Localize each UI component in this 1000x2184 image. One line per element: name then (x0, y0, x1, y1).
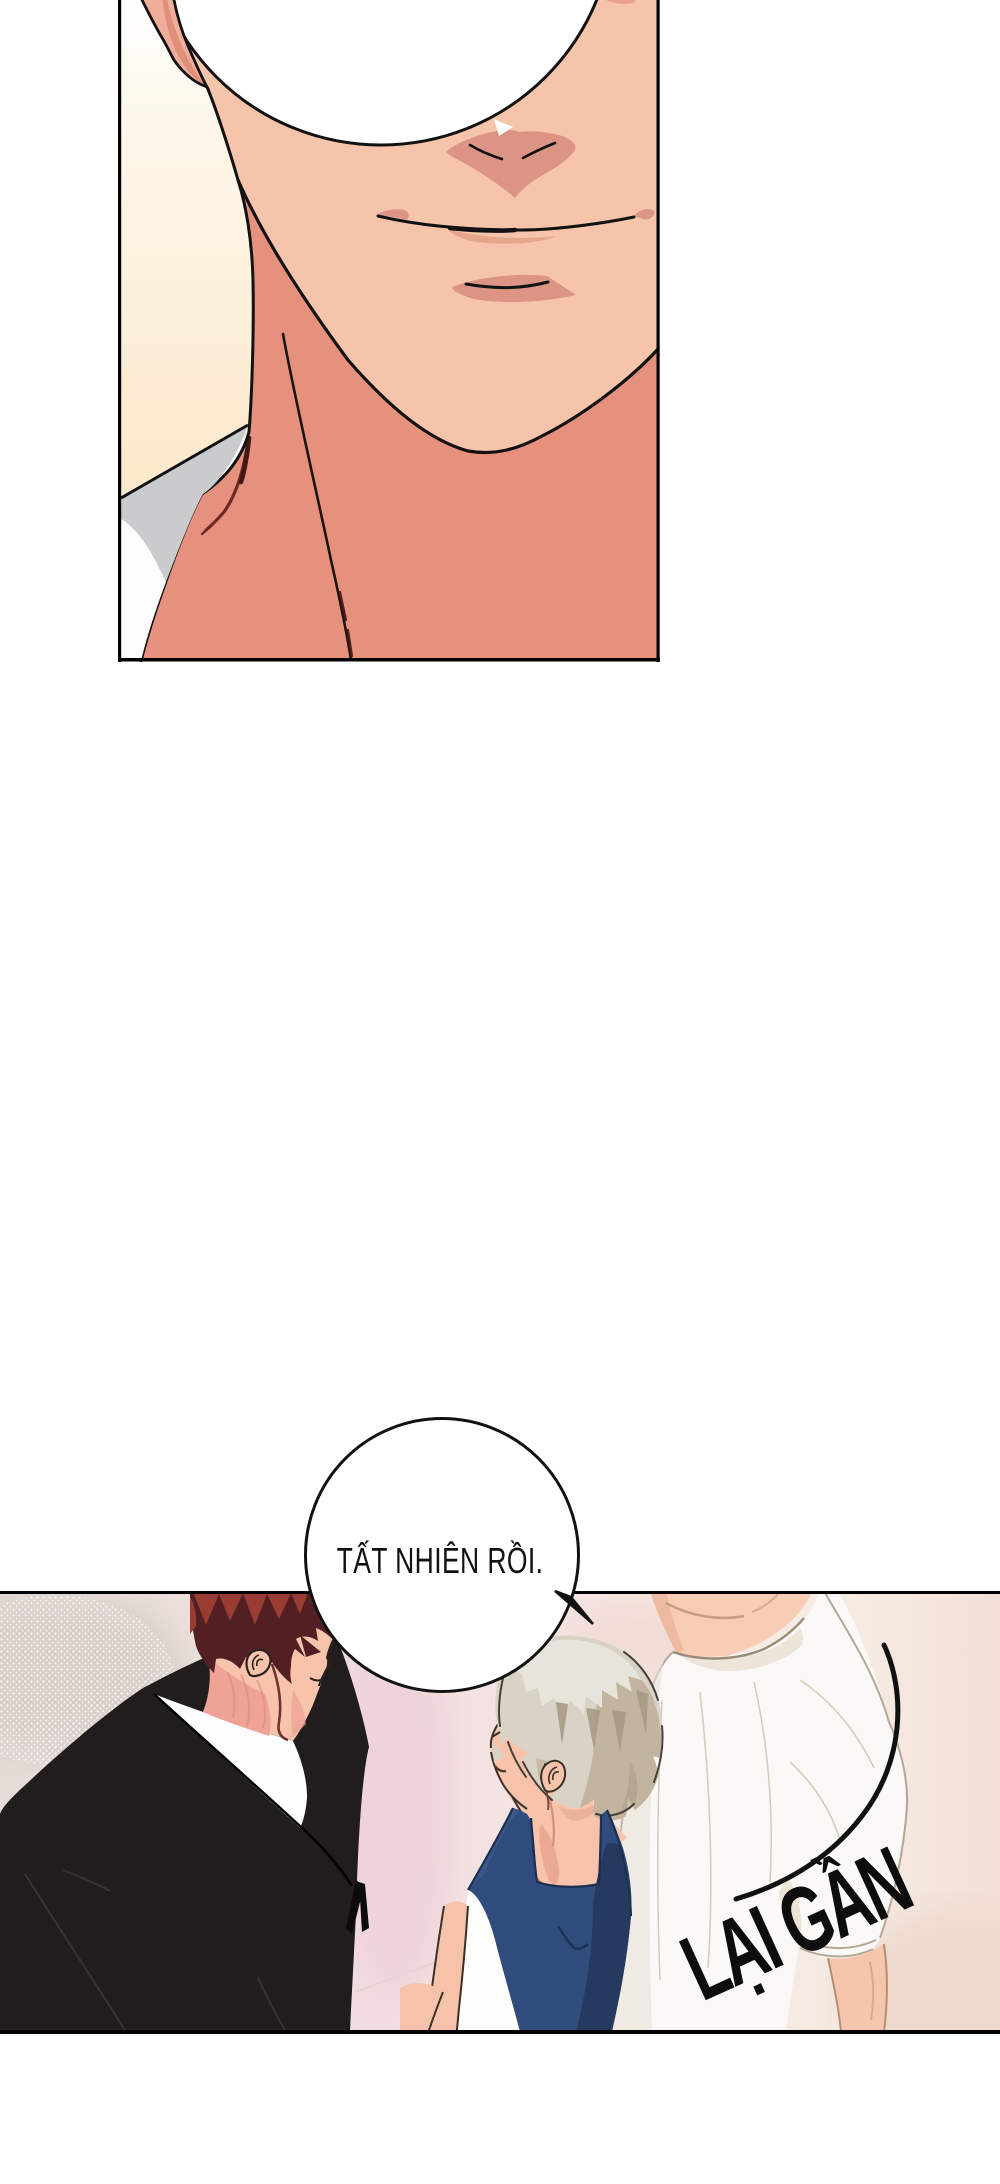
svg-text:TẤT NHIÊN RỒI.: TẤT NHIÊN RỒI. (337, 1540, 544, 1581)
